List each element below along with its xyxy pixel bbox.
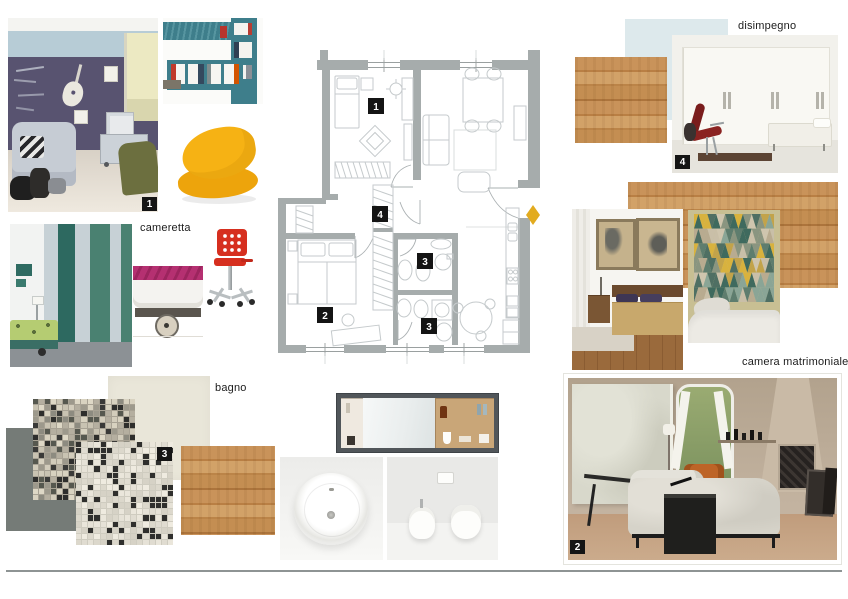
plan-badge-3b: 3	[421, 318, 437, 334]
wall-toilet	[451, 505, 481, 539]
sink-drain	[327, 511, 335, 519]
bedroom-frames-photo	[572, 209, 683, 370]
wall	[320, 50, 328, 61]
mb-inner	[568, 378, 837, 560]
chalk-mark	[16, 107, 34, 111]
svg-text:4: 4	[377, 210, 383, 221]
lamp	[600, 277, 602, 295]
flush-plate	[437, 472, 454, 484]
chair-back	[217, 229, 247, 256]
duvet	[688, 310, 780, 343]
duvet	[133, 280, 203, 308]
plan-badge-1: 1	[368, 98, 384, 114]
mb-bed-leg	[772, 538, 775, 548]
plan-badge-3a: 3	[417, 253, 433, 269]
wall-cabinet	[16, 279, 26, 287]
plan-badge-2: 2	[317, 307, 333, 323]
svg-text:3: 3	[422, 257, 428, 268]
mb-leaning-frame	[822, 468, 837, 515]
red-chair-photo	[205, 227, 257, 311]
label-disimpegno: disimpegno	[738, 20, 796, 32]
svg-text:2: 2	[322, 311, 328, 322]
plan-badge-4: 4	[372, 206, 388, 222]
master-bedroom-photo: 2	[563, 373, 842, 565]
mb-shelf	[718, 440, 776, 443]
bookshelf-photo	[163, 18, 263, 104]
mirror-glass	[363, 398, 435, 448]
framed-art	[636, 218, 680, 271]
chalk-mark	[18, 93, 44, 96]
guitar-icon	[59, 62, 93, 110]
label-bagno: bagno	[215, 382, 247, 394]
beanbag-photo	[166, 110, 270, 213]
sink-overflow	[329, 488, 334, 491]
bed-wheel-photo	[133, 266, 203, 342]
badge-bagno: 3	[157, 447, 172, 461]
floor-plan: 1 2 3 3 4	[276, 48, 566, 364]
wheel-hub	[164, 323, 169, 328]
triangle-art	[694, 214, 774, 302]
blanket	[612, 302, 683, 335]
mirror-cabinet-photo	[336, 393, 499, 453]
lamp-shade	[32, 296, 44, 305]
wall-cabinet	[16, 264, 32, 276]
wall-frame	[74, 110, 88, 124]
label-cameretta: cameretta	[140, 222, 191, 234]
kids-ceiling	[8, 18, 158, 32]
framed-art	[596, 219, 636, 270]
badge-disimpegno: 4	[675, 155, 690, 169]
chair-lever	[241, 259, 253, 262]
kids-window	[124, 33, 158, 121]
mirror-right-shelves	[435, 398, 494, 448]
badge-cameretta: 1	[142, 197, 157, 211]
svg-text:1: 1	[373, 102, 379, 113]
bags	[10, 168, 70, 204]
wall-frame	[104, 66, 118, 82]
red-book	[220, 26, 227, 38]
bed	[10, 320, 58, 356]
chalk-mark	[16, 66, 44, 72]
floor-line	[133, 336, 203, 337]
desk-edge	[163, 80, 181, 89]
mb-lamp-shade	[663, 424, 675, 435]
sink-inner-ring	[304, 483, 360, 537]
green-chair	[117, 140, 158, 196]
mb-side-cabinet	[664, 494, 716, 554]
wood-swatch-disimpegno	[575, 57, 667, 143]
wc-bidet-photo	[387, 457, 498, 560]
bottom-divider	[6, 570, 842, 572]
mood-board: 1 cameretta	[0, 0, 848, 599]
red-lounge-chair	[684, 101, 726, 155]
nightstand	[588, 295, 610, 323]
striped-wardrobe-photo	[10, 224, 132, 367]
badge-camera-matrimoniale: 2	[570, 540, 585, 554]
wood-swatch-bagno	[181, 446, 275, 535]
chalk-mark	[14, 79, 36, 83]
bench	[768, 123, 832, 147]
mirror-left-shelf	[341, 398, 363, 448]
round-sink-photo	[280, 457, 383, 560]
wardrobe-photo: 4	[672, 35, 838, 173]
label-camera-matrimoniale: camera matrimoniale	[742, 356, 848, 368]
svg-text:3: 3	[426, 322, 432, 333]
chair-base	[207, 285, 255, 307]
bidet	[409, 507, 435, 539]
triangle-art-photo	[688, 210, 780, 343]
kids-room-photo: 1	[8, 18, 158, 212]
mb-bed-leg	[636, 538, 639, 548]
